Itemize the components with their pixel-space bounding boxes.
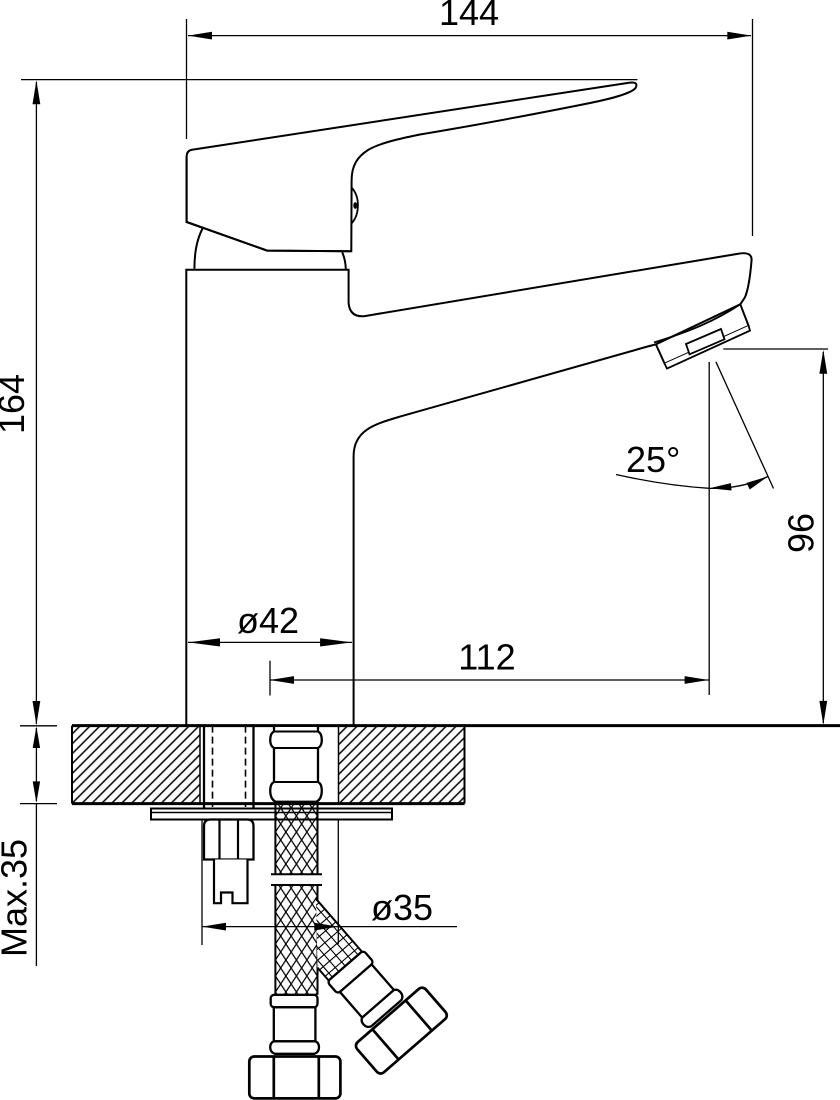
svg-text:ø42: ø42 (237, 600, 299, 641)
svg-text:112: 112 (458, 637, 515, 678)
svg-text:Max.35: Max.35 (0, 839, 35, 957)
svg-text:144: 144 (439, 0, 499, 33)
svg-text:ø35: ø35 (371, 887, 433, 928)
svg-text:25°: 25° (626, 439, 680, 480)
svg-text:96: 96 (781, 513, 822, 553)
svg-text:164: 164 (0, 374, 32, 434)
